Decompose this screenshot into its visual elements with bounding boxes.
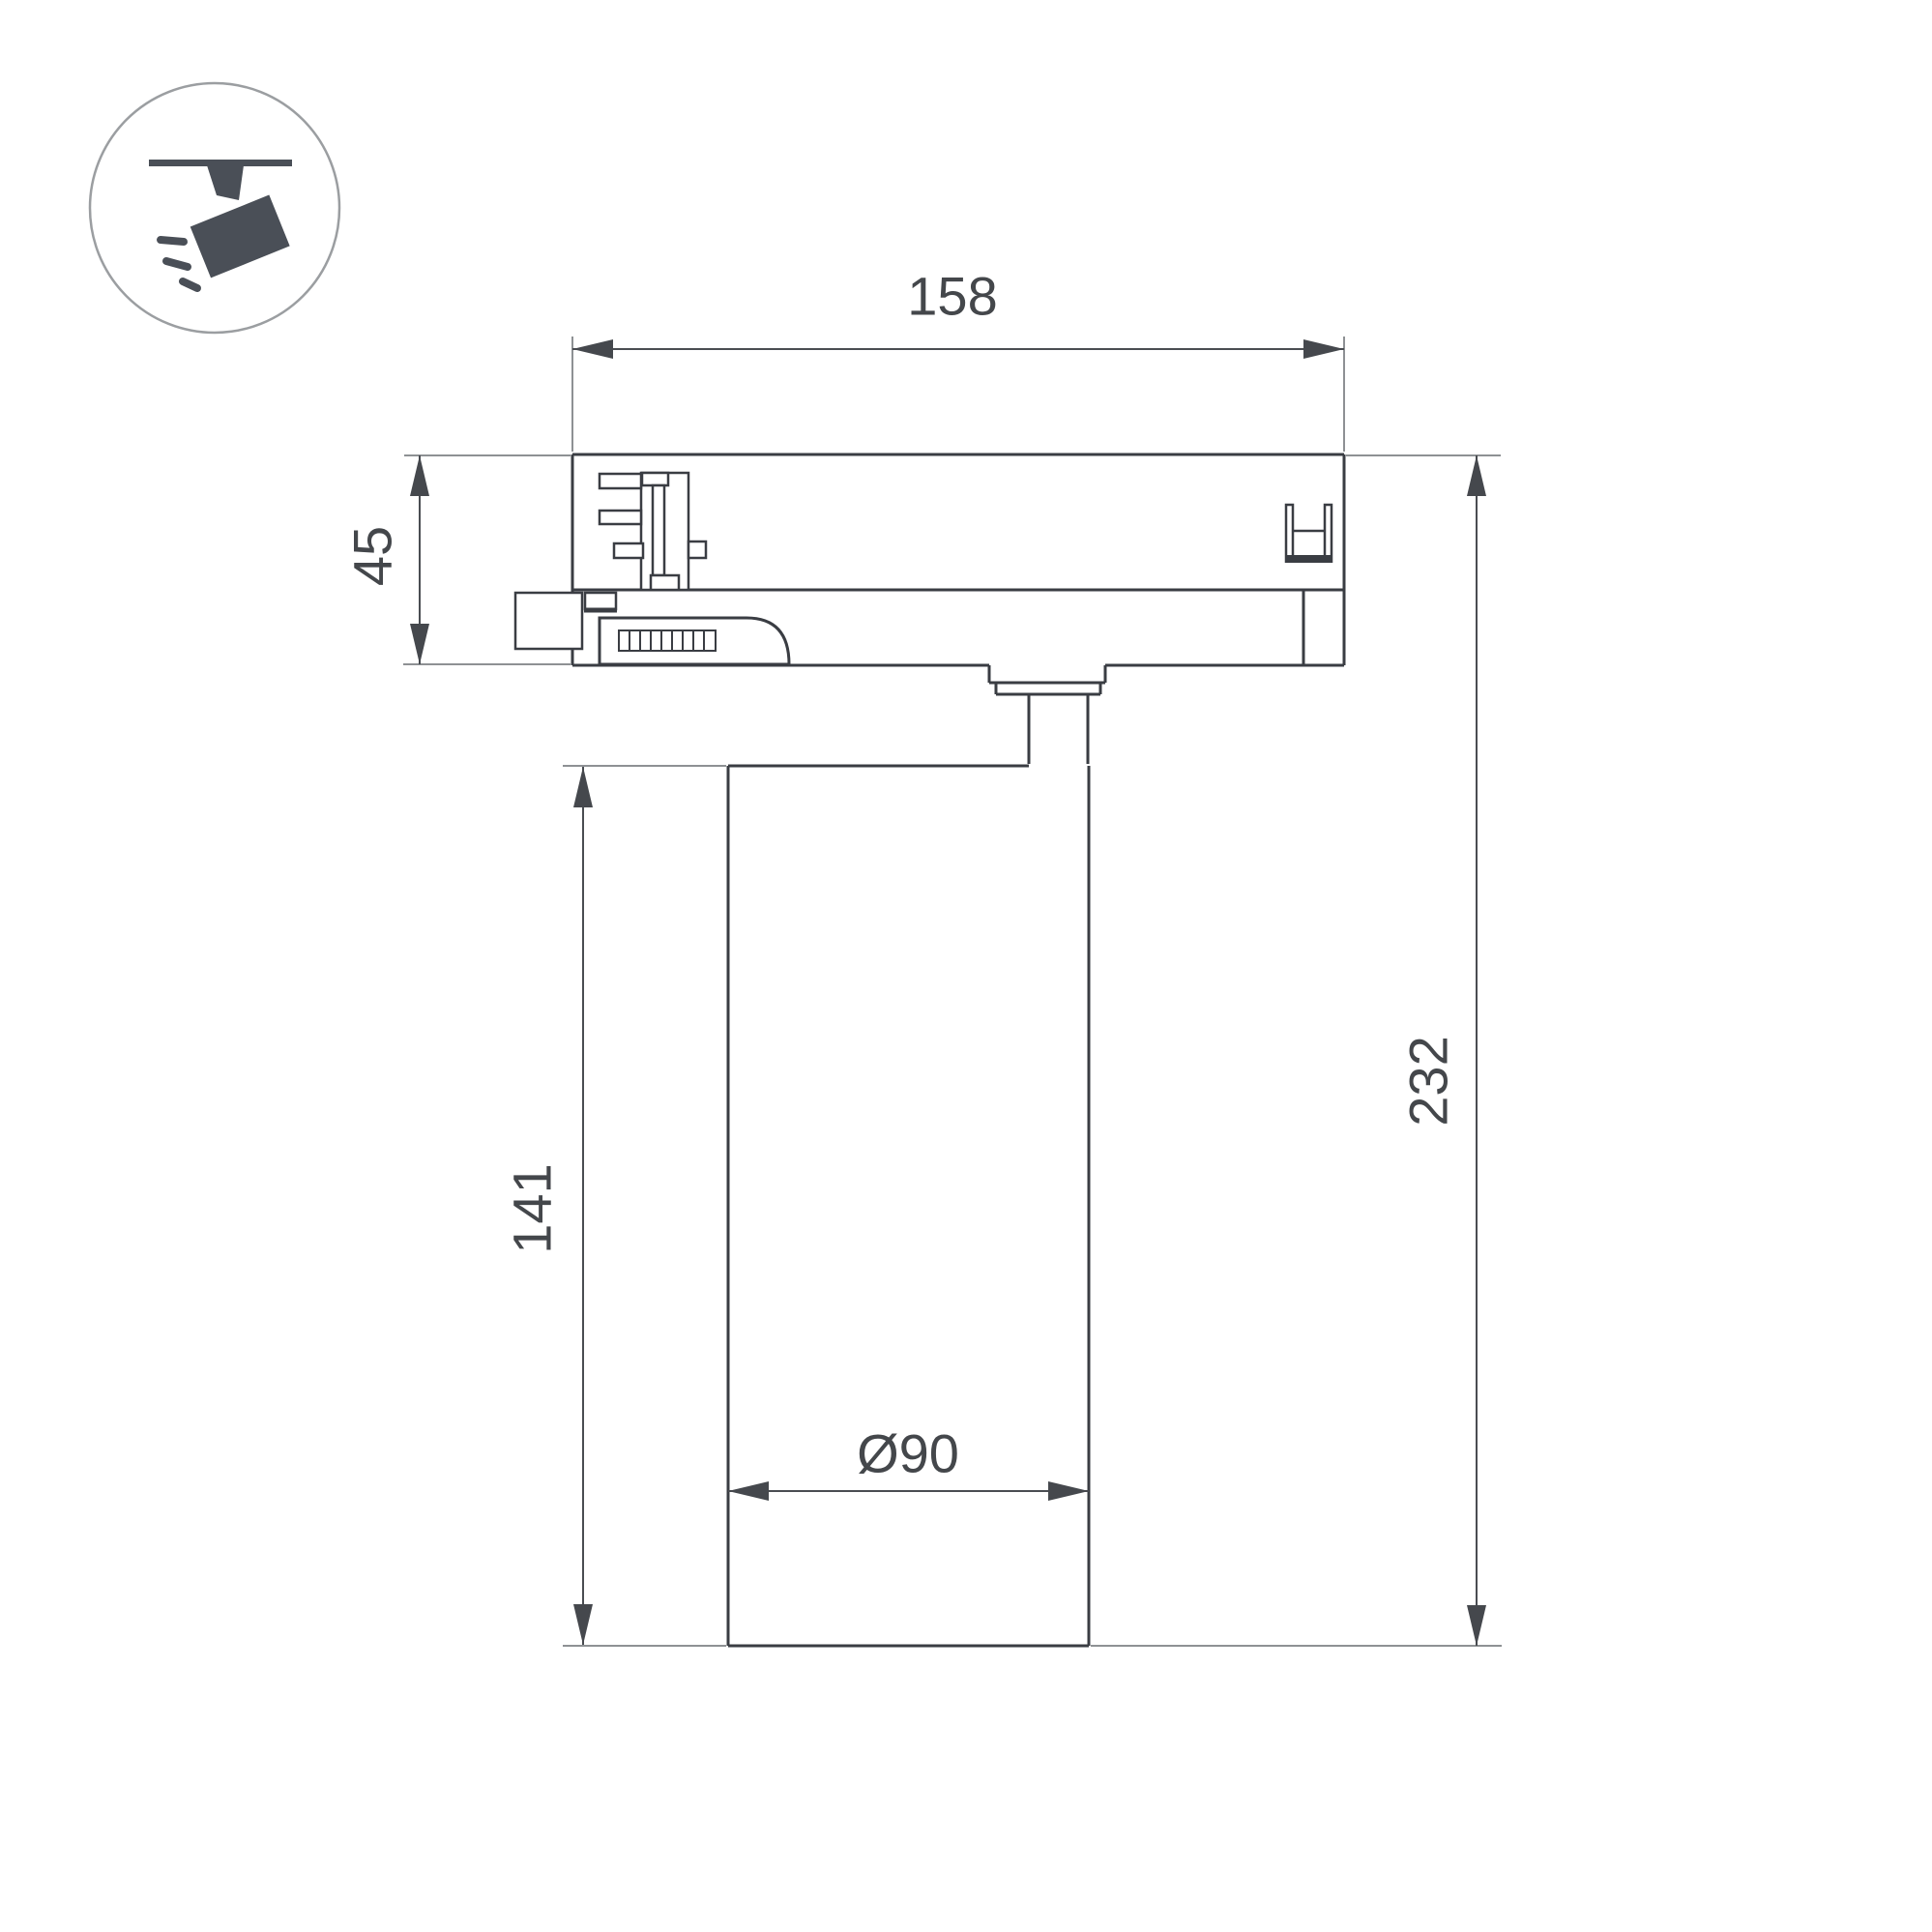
side-latch-box [515, 593, 582, 649]
dim-label-diameter: Ø90 [857, 1423, 959, 1484]
dim-label-body-height: 141 [502, 1163, 563, 1253]
icon-track-bar [149, 160, 292, 166]
drawing-canvas: 158 45 141 232 Ø90 [0, 0, 1932, 1932]
flange-and-stem [989, 665, 1105, 764]
arrowhead-down [410, 624, 429, 664]
contact-bar-middle [600, 511, 641, 524]
arrowhead-left [728, 1481, 769, 1501]
track-spotlight-icon [90, 83, 339, 333]
lamp-body [728, 766, 1089, 1646]
pin-foot [651, 575, 679, 590]
icon-circle [90, 83, 339, 333]
adapter-lower-details [515, 593, 789, 664]
technical-drawing: 158 45 141 232 Ø90 [0, 0, 1932, 1932]
pin-cap [642, 473, 668, 485]
dim-label-top-width: 158 [907, 266, 997, 327]
dim-label-total-height: 232 [1398, 1036, 1459, 1126]
contact-bar-top [600, 474, 641, 488]
latch-small-block [585, 593, 616, 609]
arrowhead-down [573, 1604, 593, 1645]
dimension-body-height: 141 [502, 766, 727, 1646]
dimension-top-width: 158 [572, 266, 1344, 453]
mount-clip-detail [1285, 505, 1332, 563]
arrowhead-up [1467, 455, 1486, 496]
pin-right-tab [688, 542, 706, 558]
arrowhead-left [572, 339, 613, 359]
contact-pin-block [600, 473, 706, 590]
pin-shaft [653, 485, 664, 575]
dimension-diameter: Ø90 [728, 1423, 1089, 1502]
dimension-total-height: 232 [1091, 455, 1502, 1646]
arrowhead-right [1048, 1481, 1089, 1501]
dim-label-adapter-height: 45 [342, 526, 403, 586]
contact-bar-bottom [614, 543, 643, 558]
arrowhead-up [573, 767, 593, 807]
arrowhead-right [1303, 339, 1344, 359]
arrowhead-down [1467, 1605, 1486, 1646]
arrowhead-up [410, 455, 429, 496]
